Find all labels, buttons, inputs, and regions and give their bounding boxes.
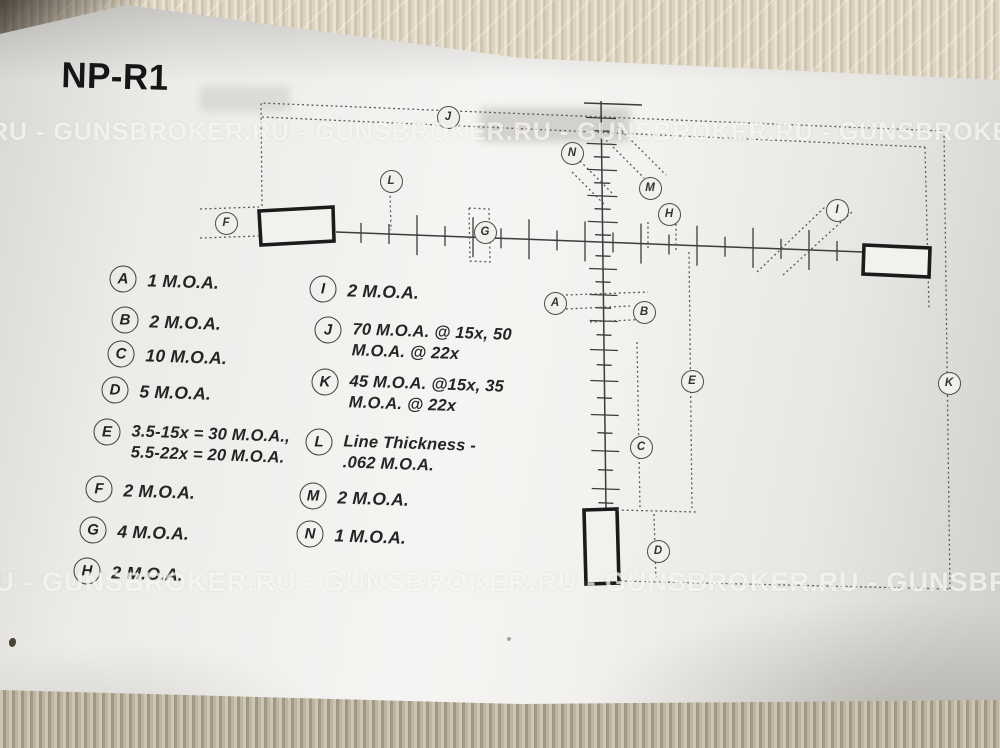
legend-value-M: 2 M.O.A. bbox=[337, 483, 409, 511]
marker-M-letter: M bbox=[645, 182, 655, 194]
legend-circle-D: D bbox=[101, 376, 128, 403]
legend-circle-A: A bbox=[109, 265, 136, 292]
marker-I-letter: I bbox=[835, 204, 838, 216]
marker-L: L bbox=[380, 170, 403, 193]
legend-value-L: Line Thickness - .062 M.O.A. bbox=[342, 429, 476, 478]
marker-C-letter: C bbox=[637, 441, 645, 453]
marker-F: F bbox=[215, 212, 238, 235]
legend-value-E: 3.5-15x = 30 M.O.A., 5.5-22x = 20 M.O.A. bbox=[130, 419, 290, 469]
legend-circle-B: B bbox=[111, 306, 138, 333]
marker-D: D bbox=[647, 540, 670, 563]
photo-of-reticle-manual-page: NP-R1 bbox=[0, 0, 1000, 748]
legend-item-D: D 5 M.O.A. bbox=[101, 376, 211, 407]
marker-I: I bbox=[826, 199, 849, 222]
watermark-band-bottom: RU - GUNSBROKER.RU - GUNSBROKER.RU - GUN… bbox=[0, 567, 1000, 603]
legend-circle-M: M bbox=[299, 482, 326, 509]
legend-value-G: 4 M.O.A. bbox=[117, 517, 189, 545]
marker-B: B bbox=[633, 301, 656, 324]
legend-item-L: L Line Thickness - .062 M.O.A. bbox=[304, 428, 476, 479]
legend-item-I: I 2 M.O.A. bbox=[309, 275, 419, 306]
legend-item-K: K 45 M.O.A. @15x, 35 M.O.A. @ 22x bbox=[310, 368, 504, 420]
legend-item-F: F 2 M.O.A. bbox=[85, 475, 195, 506]
marker-D-letter: D bbox=[654, 545, 662, 557]
marker-G: G bbox=[474, 221, 497, 244]
legend-value-A: 1 M.O.A. bbox=[147, 266, 219, 294]
legend-value-C: 10 M.O.A. bbox=[145, 341, 227, 370]
marker-F-letter: F bbox=[222, 217, 229, 229]
legend-circle-L: L bbox=[305, 428, 332, 455]
marker-L-letter: L bbox=[387, 175, 394, 187]
legend-item-N: N 1 M.O.A. bbox=[296, 520, 406, 551]
legend-item-G: G 4 M.O.A. bbox=[79, 516, 189, 547]
marker-G-letter: G bbox=[481, 226, 490, 238]
marker-H: H bbox=[658, 203, 681, 226]
legend-circle-I: I bbox=[309, 275, 336, 302]
legend-circle-N: N bbox=[296, 520, 323, 547]
legend-value-J: 70 M.O.A. @ 15x, 50 M.O.A. @ 22x bbox=[351, 317, 512, 367]
legend-value-N: 1 M.O.A. bbox=[334, 521, 406, 549]
legend-value-I: 2 M.O.A. bbox=[347, 276, 419, 304]
marker-A-letter: A bbox=[551, 297, 559, 309]
legend-item-M: M 2 M.O.A. bbox=[299, 482, 409, 513]
legend-item-B: B 2 M.O.A. bbox=[111, 306, 221, 337]
legend-item-E: E 3.5-15x = 30 M.O.A., 5.5-22x = 20 M.O.… bbox=[92, 418, 290, 470]
marker-H-letter: H bbox=[665, 208, 673, 220]
marker-K: K bbox=[938, 372, 961, 395]
marker-B-letter: B bbox=[640, 306, 648, 318]
legend-item-A: A 1 M.O.A. bbox=[109, 265, 219, 296]
legend-value-B: 2 M.O.A. bbox=[149, 307, 221, 335]
legend-value-D: 5 M.O.A. bbox=[139, 377, 211, 405]
legend-circle-J: J bbox=[314, 316, 341, 343]
legend-circle-F: F bbox=[85, 475, 112, 502]
legend-circle-C: C bbox=[107, 340, 134, 367]
legend-circle-K: K bbox=[311, 368, 338, 395]
legend-value-F: 2 M.O.A. bbox=[123, 476, 195, 504]
marker-C: C bbox=[630, 436, 653, 459]
legend-circle-E: E bbox=[93, 418, 120, 445]
legend-item-C: C 10 M.O.A. bbox=[107, 340, 227, 371]
marker-K-letter: K bbox=[945, 377, 953, 389]
marker-E: E bbox=[681, 370, 704, 393]
legend-value-K: 45 M.O.A. @15x, 35 M.O.A. @ 22x bbox=[348, 369, 504, 419]
manual-paper-sheet: NP-R1 bbox=[0, 0, 1000, 748]
watermark-band-top: RU - GUNSBROKER.RU - GUNSBROKER.RU - GUN… bbox=[0, 118, 1000, 154]
legend-item-J: J 70 M.O.A. @ 15x, 50 M.O.A. @ 22x bbox=[313, 316, 512, 368]
legend-circle-G: G bbox=[79, 516, 106, 543]
marker-M: M bbox=[639, 177, 662, 200]
marker-E-letter: E bbox=[688, 375, 696, 387]
marker-A: A bbox=[544, 292, 567, 315]
